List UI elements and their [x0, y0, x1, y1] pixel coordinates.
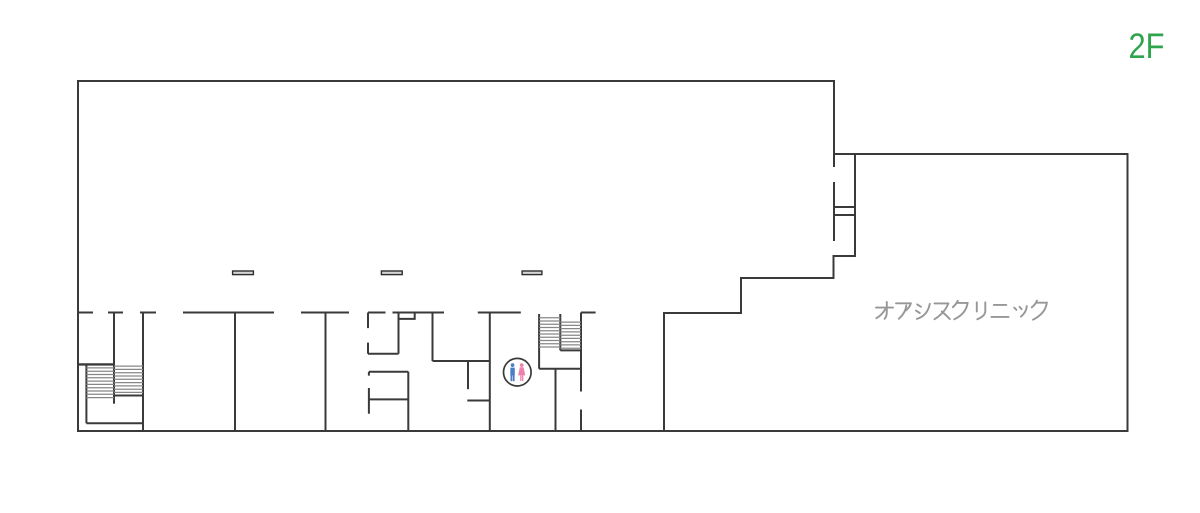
svg-text:2F: 2F: [1129, 26, 1165, 66]
